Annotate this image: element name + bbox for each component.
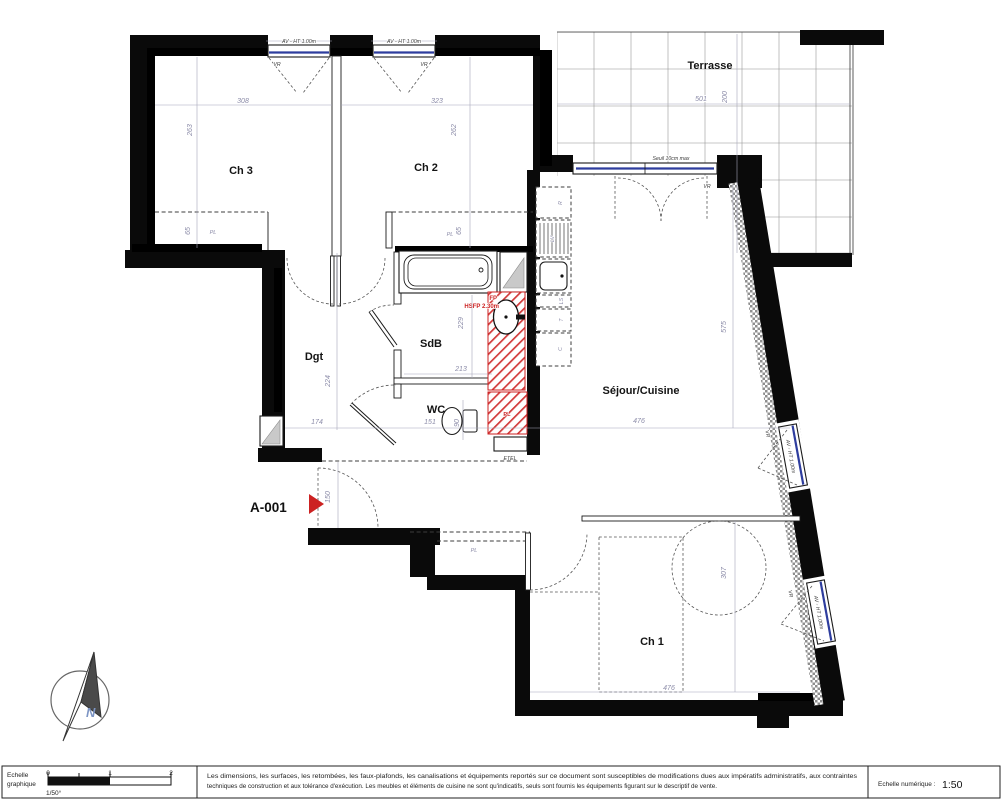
wall-segment — [770, 253, 852, 267]
legal-text-line2: techniques de construction et aux toléra… — [207, 783, 717, 790]
numeric-scale-label: Echelle numérique : — [878, 781, 936, 788]
room-label-sejour: Séjour/Cuisine — [602, 385, 679, 397]
wall-segment — [515, 590, 530, 716]
dim-ch1-depth: 307 — [721, 566, 728, 579]
wall-segment — [515, 700, 843, 716]
dim-ch1-width: 476 — [663, 685, 675, 692]
dim-ch2-width: 323 — [431, 98, 443, 105]
dim-sejour-width: 476 — [633, 418, 645, 425]
oven-label: C — [558, 347, 564, 351]
closet-tag: PL — [471, 548, 478, 554]
room-label-ch2: Ch 2 — [414, 162, 438, 174]
dim-ch3-depth: 263 — [187, 124, 194, 137]
dim-sdb-width: 213 — [454, 366, 467, 373]
scale-ratio: 1/50° — [46, 789, 62, 797]
room-label-ch1: Ch 1 — [640, 636, 664, 648]
dim-ch2-pl: 65 — [456, 227, 463, 235]
scale-block-label-2: graphique — [7, 781, 36, 788]
bathtub — [399, 251, 497, 293]
wall-segment — [125, 250, 285, 268]
numeric-scale-value: 1:50 — [942, 779, 963, 791]
unit-label: A-001 — [250, 500, 287, 515]
window-tag: AV - HT 1.00m — [281, 39, 317, 45]
shutter-tag: VR — [703, 184, 710, 190]
wall-segment — [800, 30, 884, 45]
footer: Echelle graphique 0 1 2 1/50° Les dimens… — [2, 766, 1000, 798]
window-tag: AV - HT 1.00m — [386, 39, 422, 45]
room-label-ch3: Ch 3 — [229, 165, 253, 177]
dim-terrasse-depth: 200 — [722, 91, 729, 104]
fridge-label: R — [558, 201, 564, 205]
false-ceiling-tag: FP — [489, 296, 497, 302]
room-label-sdb: SdB — [420, 338, 442, 350]
threshold-tag: Seuil 10cm max — [653, 156, 690, 162]
technical-shaft — [500, 252, 527, 292]
closet-tag: PL — [447, 232, 454, 238]
entry-shaft — [260, 416, 283, 446]
room-label-terrasse: Terrasse — [687, 60, 732, 72]
dim-ch3-width: 308 — [237, 98, 249, 105]
dim-wc-width: 151 — [424, 419, 436, 426]
dim-sejour-depth: 575 — [721, 321, 728, 333]
room-label-wc: WC — [427, 404, 445, 416]
wall-segment — [330, 35, 373, 48]
dim-entry-width: 150 — [325, 491, 332, 503]
shutter-tag: VR — [420, 62, 427, 68]
wall-segment — [410, 545, 435, 577]
wall-segment — [427, 575, 530, 590]
wall-segment — [533, 155, 573, 172]
dim-sdb-depth: 229 — [458, 317, 465, 330]
closet-tag: PL — [210, 230, 217, 236]
dim-dgt-depth: 224 — [325, 375, 332, 388]
dishwasher-label: LV — [550, 235, 556, 242]
dim-ch2-depth: 262 — [451, 124, 458, 137]
wall-segment — [757, 716, 789, 728]
wall-segment — [435, 35, 540, 48]
floor-plan-drawing: AV - HT 1.00m VR AV - HT 1.00m VR Seuil … — [0, 0, 1002, 800]
ceiling-height-tag: HSFP 2.30m — [464, 304, 499, 310]
wall-segment — [308, 528, 440, 545]
closet-tag: PL — [503, 412, 511, 418]
shutter-tag: VR — [273, 62, 280, 68]
wall-segment — [130, 35, 147, 260]
compass-north-label: N — [86, 705, 96, 720]
dim-wc-depth: 90 — [454, 419, 461, 427]
wall-segment — [130, 35, 268, 48]
dim-ch3-pl: 65 — [185, 227, 192, 235]
legal-text-line1: Les dimensions, les surfaces, les retomb… — [207, 773, 857, 780]
dim-terrasse-width: 501 — [695, 96, 707, 103]
room-label-dgt: Dgt — [305, 351, 324, 363]
kitchen-appliances: R LV LS T C — [536, 187, 571, 366]
floor-plan-page: AV - HT 1.00m VR AV - HT 1.00m VR Seuil … — [0, 0, 1002, 800]
dim-dgt-width: 174 — [311, 419, 323, 426]
scale-block-label-1: Echelle — [7, 772, 29, 779]
wall-segment — [258, 448, 322, 462]
washer-label: LS — [559, 297, 565, 304]
